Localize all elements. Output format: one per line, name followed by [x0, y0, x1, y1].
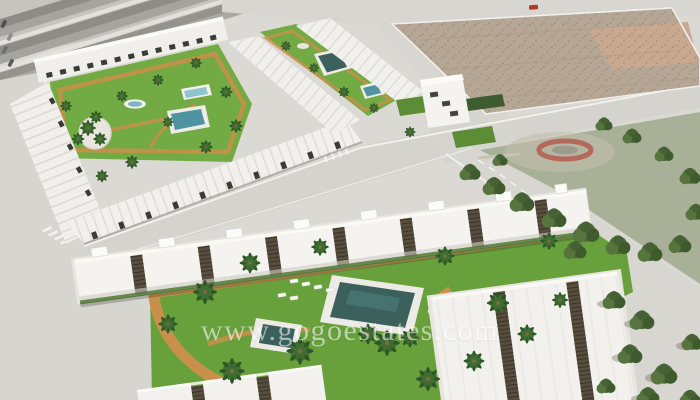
courtyard2-oval [297, 43, 309, 49]
playground-ring [539, 141, 591, 159]
fountain [124, 99, 146, 108]
render-scene [0, 0, 700, 400]
red-car [529, 5, 538, 10]
aerial-render: www.gogoestates.com [0, 0, 700, 400]
